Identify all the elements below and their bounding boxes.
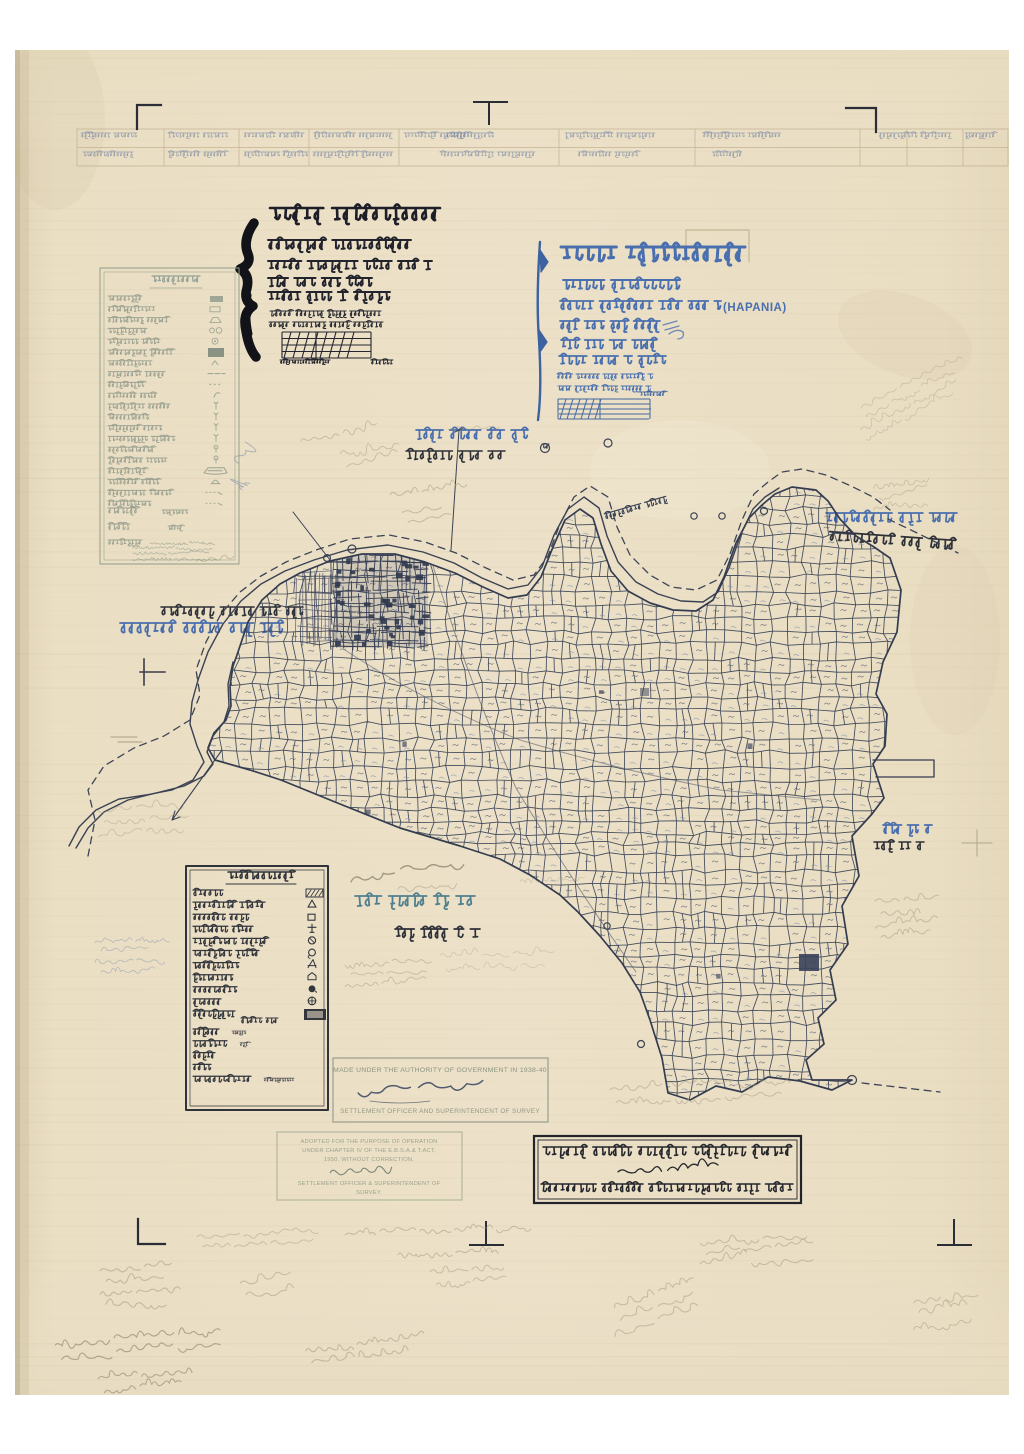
svg-text:SETTLEMENT OFFICER & SUPERINTE: SETTLEMENT OFFICER & SUPERINTENDENT OF xyxy=(298,1181,441,1187)
svg-text:ADOPTED FOR THE PURPOSE OF OPE: ADOPTED FOR THE PURPOSE OF OPERATION xyxy=(300,1139,437,1145)
svg-text:1950, WITHOUT CORRECTION.: 1950, WITHOUT CORRECTION. xyxy=(324,1157,414,1163)
svg-text:SETTLEMENT OFFICER AND SUPERIN: SETTLEMENT OFFICER AND SUPERINTENDENT OF… xyxy=(340,1108,540,1115)
svg-text:UNDER CHAPTER IV OF THE E.B.S.: UNDER CHAPTER IV OF THE E.B.S.A.& T.ACT, xyxy=(302,1148,436,1154)
svg-text:SURVEY.: SURVEY. xyxy=(356,1190,382,1196)
svg-text:(HAPANIA): (HAPANIA) xyxy=(723,302,787,314)
svg-text:MADE UNDER THE AUTHORITY OF GO: MADE UNDER THE AUTHORITY OF GOVERNMENT I… xyxy=(333,1067,547,1074)
